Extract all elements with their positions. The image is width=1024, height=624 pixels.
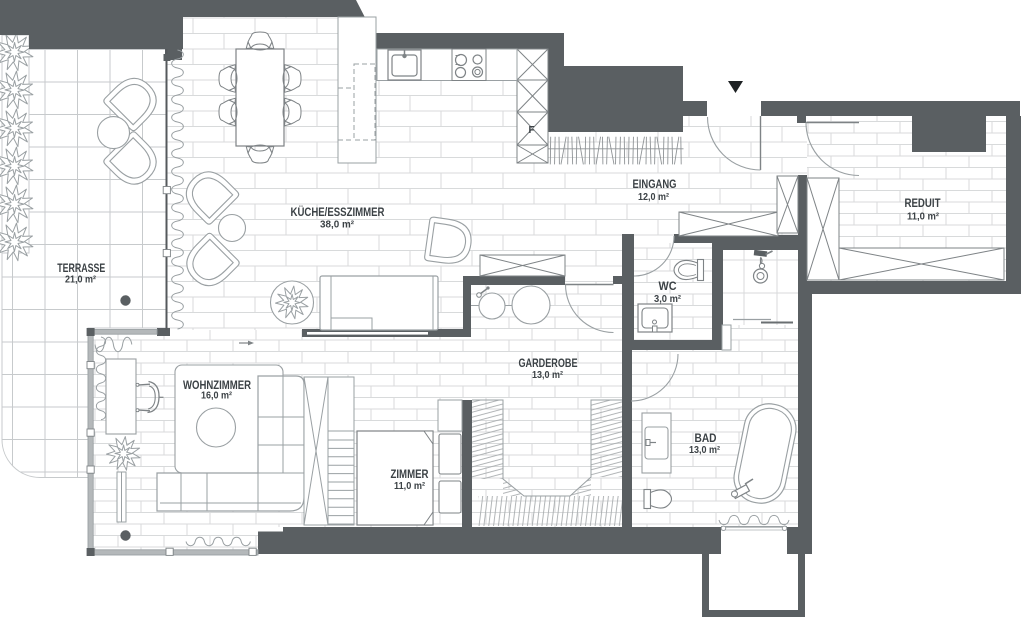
svg-text:F: F <box>528 125 534 136</box>
svg-text:WC: WC <box>659 280 678 293</box>
svg-text:GARDEROBE: GARDEROBE <box>519 357 578 370</box>
svg-text:3,0 m²: 3,0 m² <box>654 294 682 305</box>
svg-text:TERRASSE: TERRASSE <box>57 262 105 275</box>
svg-text:21,0 m²: 21,0 m² <box>65 275 97 286</box>
svg-text:13,0 m²: 13,0 m² <box>689 445 721 456</box>
svg-text:13,0 m²: 13,0 m² <box>532 370 564 381</box>
svg-text:ZIMMER: ZIMMER <box>391 468 430 481</box>
svg-text:KÜCHE/ESSZIMMER: KÜCHE/ESSZIMMER <box>291 206 386 219</box>
svg-text:BAD: BAD <box>695 432 717 445</box>
svg-text:EINGANG: EINGANG <box>633 178 677 191</box>
svg-text:11,0 m²: 11,0 m² <box>907 211 940 222</box>
svg-text:REDUIT: REDUIT <box>905 197 941 210</box>
svg-text:12,0 m²: 12,0 m² <box>638 192 670 203</box>
svg-text:11,0 m²: 11,0 m² <box>394 481 426 492</box>
svg-text:16,0 m²: 16,0 m² <box>201 390 233 401</box>
svg-text:38,0 m²: 38,0 m² <box>320 220 355 231</box>
